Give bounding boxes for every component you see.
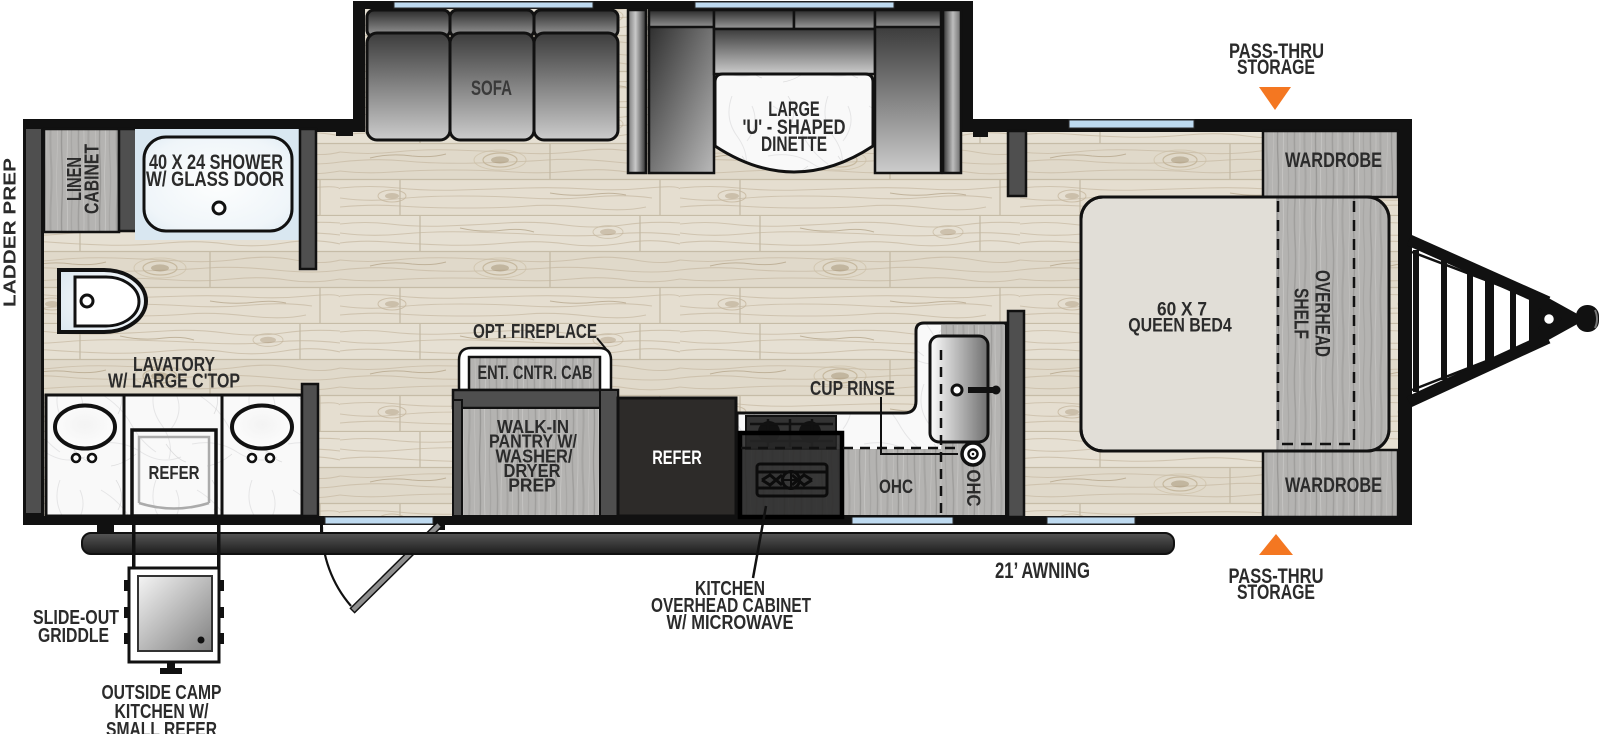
- svg-text:W/ LARGE C'TOP: W/ LARGE C'TOP: [108, 371, 240, 393]
- svg-text:GRIDDLE: GRIDDLE: [38, 625, 109, 647]
- svg-text:OVERHEAD: OVERHEAD: [1311, 270, 1334, 357]
- svg-text:W/ GLASS DOOR: W/ GLASS DOOR: [146, 168, 284, 191]
- svg-text:OHC: OHC: [879, 476, 913, 498]
- svg-text:OPT. FIREPLACE: OPT. FIREPLACE: [473, 320, 597, 343]
- svg-text:21’ AWNING: 21’ AWNING: [995, 558, 1090, 583]
- svg-text:SMALL REFER: SMALL REFER: [106, 719, 217, 734]
- svg-text:SHELF: SHELF: [1290, 288, 1312, 339]
- svg-text:WARDROBE: WARDROBE: [1285, 148, 1382, 172]
- svg-text:CABINET: CABINET: [82, 144, 104, 214]
- svg-text:DINETTE: DINETTE: [761, 133, 827, 156]
- svg-text:CUP RINSE: CUP RINSE: [810, 378, 895, 400]
- svg-text:OHC: OHC: [962, 470, 984, 507]
- svg-text:SOFA: SOFA: [471, 77, 512, 100]
- svg-text:REFER: REFER: [149, 462, 200, 483]
- svg-text:QUEEN BED4: QUEEN BED4: [1128, 315, 1232, 337]
- svg-text:STORAGE: STORAGE: [1237, 56, 1315, 79]
- svg-text:REFER: REFER: [652, 448, 702, 469]
- svg-text:ENT. CNTR. CAB: ENT. CNTR. CAB: [478, 363, 593, 384]
- svg-text:WARDROBE: WARDROBE: [1285, 473, 1382, 497]
- svg-text:LADDER PREP: LADDER PREP: [0, 158, 20, 307]
- svg-text:W/ MICROWAVE: W/ MICROWAVE: [667, 612, 794, 634]
- svg-text:STORAGE: STORAGE: [1237, 581, 1315, 604]
- svg-text:PREP: PREP: [508, 475, 556, 496]
